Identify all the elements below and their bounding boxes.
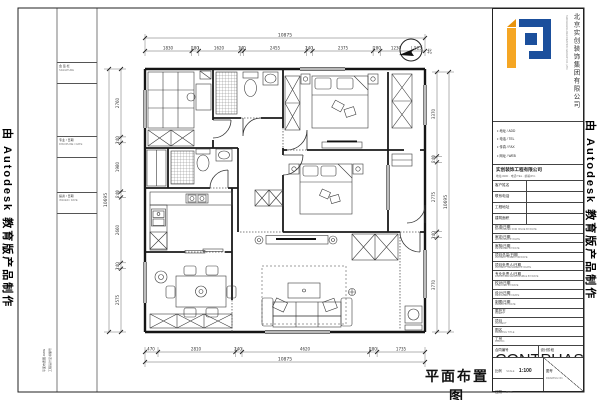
scale-drawingno-block: 比例 SCALE 1:100 日期 DATE 图号 DRAWING NO.	[493, 358, 583, 391]
company-name: 实创装饰工程有限公司	[496, 167, 580, 173]
title-block: 北京实创装饰集团有限公司 SHICHUANG DECORATION GROUP …	[492, 8, 584, 392]
svg-text:280: 280	[373, 46, 381, 51]
date-cell: 日期 DATE	[493, 379, 543, 399]
watermark-left: 由 Autodesk 教育版产品制作	[0, 128, 16, 308]
svg-text:2810: 2810	[191, 347, 202, 352]
svg-text:240: 240	[305, 46, 313, 51]
dimension-ticks	[107, 36, 451, 364]
bathroom-1	[216, 72, 278, 114]
svg-text:240: 240	[431, 155, 436, 163]
logo-area: 北京实创装饰集团有限公司 SHICHUANG DECORATION GROUP …	[493, 9, 583, 122]
dim-top-total: 10875	[278, 33, 292, 39]
scale-cell: 比例 SCALE 1:100	[493, 358, 543, 379]
svg-text:3370: 3370	[431, 108, 436, 119]
svg-text:2375: 2375	[338, 46, 349, 51]
hallway-cabinet	[255, 190, 283, 206]
svg-text:280: 280	[191, 46, 199, 51]
company-logo-icon	[499, 15, 557, 73]
contact-item: 电话 / TEL	[497, 136, 579, 141]
phase-row: 合同编号CONTRACT NO. 设计阶段PHASE	[493, 346, 583, 358]
svg-text:240: 240	[115, 262, 120, 270]
drawing-title: 平面布置图	[421, 366, 493, 400]
furniture	[147, 71, 422, 330]
sign-strip-cell: 会 签 栏SIGNATURE	[57, 62, 97, 84]
living-room	[255, 234, 422, 330]
scale-value: 1:100	[519, 368, 532, 374]
contact-item: 地址 / ADD	[497, 128, 579, 133]
drawing-no-cell: 图号 DRAWING NO.	[544, 358, 583, 391]
svg-text:4620: 4620	[300, 347, 311, 352]
dim-left-total: 10695	[103, 193, 109, 207]
company-block: 实创装饰工程有限公司 地址/ADD · 电话/TEL · 邮编/P.C.	[493, 165, 583, 181]
sign-strip-cell: 专业 / 日期DISCIPLINE / DATE	[57, 136, 97, 158]
signature-rows: 批准/日期AUTHORIZED FOR ISSUE BY/DATE 审定/日期A…	[493, 225, 583, 346]
study-room	[148, 71, 211, 146]
dim-right-total: 10695	[443, 195, 449, 209]
svg-text:280: 280	[369, 347, 377, 352]
cert-number-label: 工程设计证书编号	[48, 348, 52, 372]
svg-text:2760: 2760	[115, 97, 120, 108]
contact-item: 网址 / WEB	[497, 153, 579, 158]
watermark-right: 由 Autodesk 教育版产品制作	[583, 120, 599, 300]
svg-text:3770: 3770	[431, 279, 436, 290]
svg-text:1830: 1830	[163, 46, 174, 51]
svg-text:2455: 2455	[270, 46, 281, 51]
svg-text:1980: 1980	[115, 161, 120, 172]
drawing-sheet: 10875 1830 280 1620 140 2455 240 2375 28…	[0, 0, 600, 400]
company-vertical-name: 北京实创装饰集团有限公司	[570, 13, 580, 117]
svg-text:2775: 2775	[431, 191, 436, 202]
svg-text:2575: 2575	[115, 294, 120, 305]
dining-area	[150, 266, 236, 328]
svg-text:240: 240	[115, 136, 120, 144]
svg-text:1620: 1620	[214, 46, 225, 51]
svg-text:2660: 2660	[115, 224, 120, 235]
bathroom-2	[147, 149, 232, 186]
svg-text:240: 240	[234, 347, 242, 352]
client-info-table: 客户姓名 联系电话 工程地址 建筑面积	[493, 181, 583, 225]
svg-text:240: 240	[115, 190, 120, 198]
north-label: 北	[427, 48, 432, 55]
contact-list: 地址 / ADD 电话 / TEL 传真 / FAX 网址 / WEB	[493, 122, 583, 165]
company-address: 地址/ADD · 电话/TEL · 邮编/P.C.	[496, 174, 580, 178]
svg-text:140: 140	[238, 46, 246, 51]
bedroom-2	[289, 154, 412, 214]
company-vertical-sub: SHICHUANG DECORATION GROUP CO.,LTD.	[565, 15, 568, 115]
kitchen	[150, 192, 232, 253]
svg-text:240: 240	[431, 231, 436, 239]
svg-text:470: 470	[147, 347, 155, 352]
contact-item: 传真 / FAX	[497, 144, 579, 149]
sign-strip-cell: 提资 / 日期ISSUED / DATE	[57, 192, 97, 214]
svg-text:1735: 1735	[396, 347, 407, 352]
dimension-labels: 10875 1830 280 1620 140 2455 240 2375 28…	[103, 33, 449, 363]
bedroom-1	[285, 74, 412, 148]
file-name-label: 平面布置图.DWG	[42, 349, 46, 372]
dim-bottom-total: 10875	[278, 357, 292, 363]
